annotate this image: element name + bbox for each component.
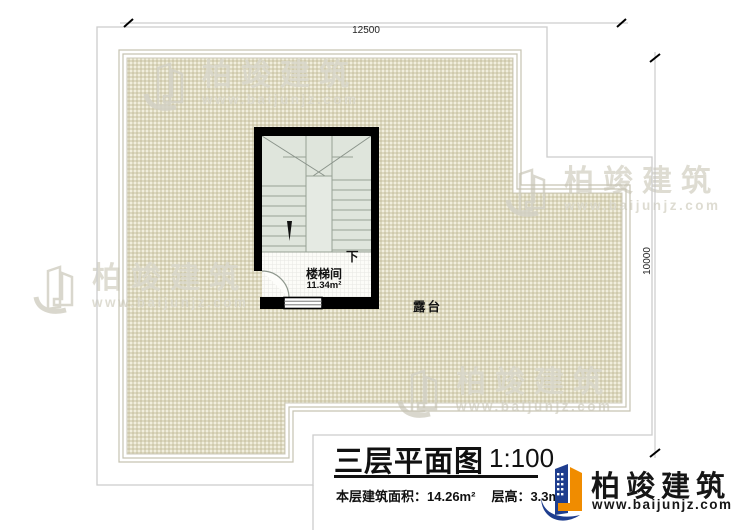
page-title: 三层平面图 [334,438,484,480]
dimension-width-label: 12500 [336,25,396,36]
title-info-line: 本层建筑面积：14.26m²层高：3.3m [336,486,560,505]
stairwell-area-label: 11.34m² [298,280,350,291]
floorplan-canvas: 柏竣建筑 www.baijunjz.com 柏竣建筑 www.baijunjz.… [0,0,750,530]
stair-down-label: 下 [346,246,359,265]
floor-height-label: 层高： [491,489,530,504]
company-logo-icon [538,461,588,523]
dimension-height-label: 10000 [641,239,655,283]
terrace-label: 露台 [413,296,442,315]
company-logo-url: www.baijunjz.com [592,497,733,512]
area-label: 本层建筑面积： [336,489,427,504]
title-underline [334,475,538,478]
area-value: 14.26m² [427,489,475,504]
window-symbol [284,298,322,309]
